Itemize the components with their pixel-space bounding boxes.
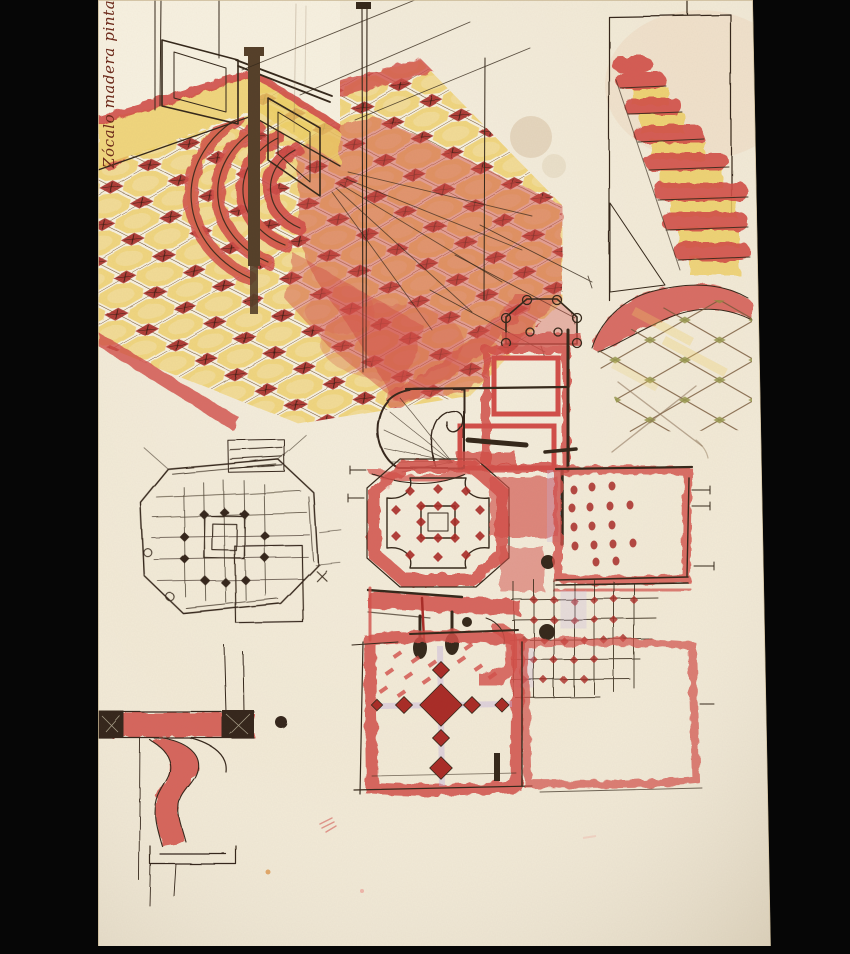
- sketchbook-scan: Zócalo madera pintada: [0, 0, 850, 954]
- paper-grain: [98, 0, 771, 947]
- sketch-canvas: Zócalo madera pintada: [0, 0, 850, 954]
- paper-sheet: Zócalo madera pintada: [98, 0, 795, 947]
- frame-bottom: [0, 946, 850, 954]
- frame-left: [0, 0, 98, 954]
